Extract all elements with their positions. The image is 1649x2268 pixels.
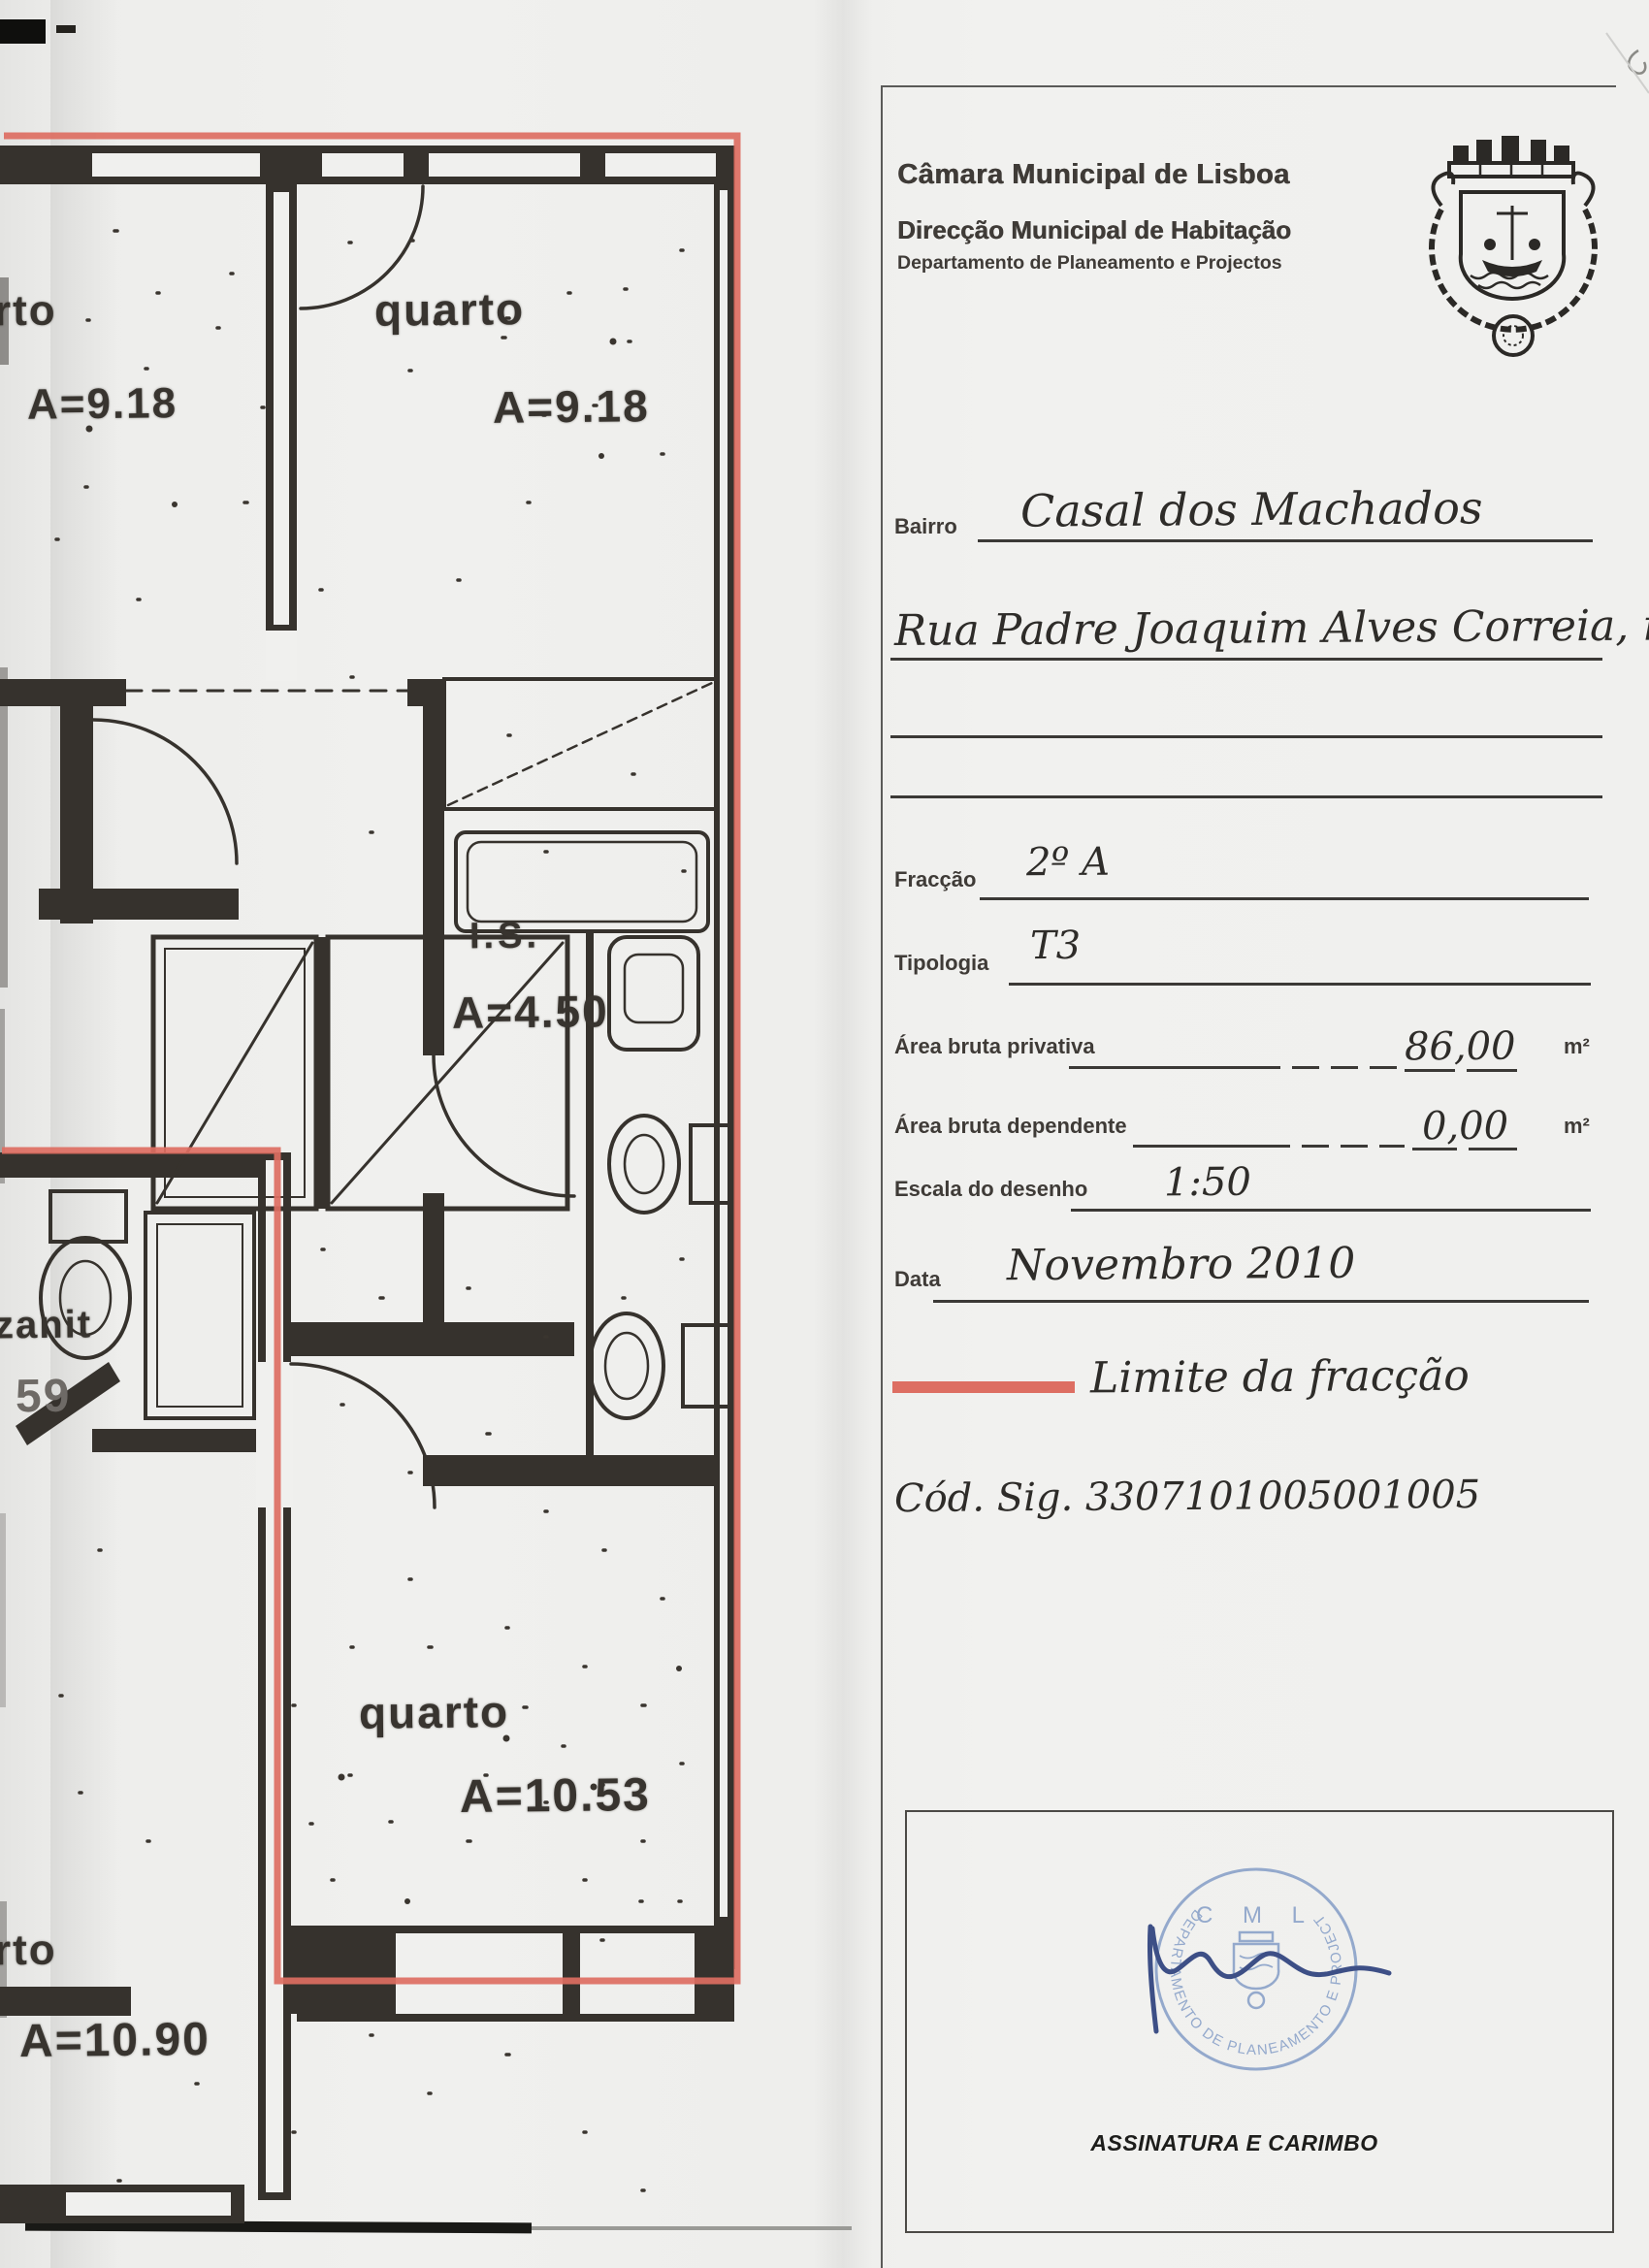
area-privativa-unit: m²: [1564, 1034, 1590, 1059]
dash: [1292, 1066, 1319, 1069]
hatched-area: [444, 679, 716, 809]
room-area-label: A=10.90: [19, 2013, 210, 2068]
dash: [1331, 1066, 1358, 1069]
dash: [1467, 1069, 1517, 1072]
area-dependente-unit: m²: [1564, 1114, 1590, 1139]
tipologia-value: T3: [1030, 923, 1081, 968]
cod-sig: Cód. Sig. 3307101005001005: [894, 1473, 1480, 1521]
room-label: rto: [0, 1927, 57, 1976]
data-value: Novembro 2010: [1007, 1239, 1356, 1291]
bidet-icon: [590, 1313, 663, 1418]
door-arc: [434, 1055, 574, 1196]
scanned-document-page: DEPARTAMENTO DE PLANEAMENTO E PROJECTOS …: [0, 0, 1649, 2268]
area-privativa-label: Área bruta privativa: [894, 1034, 1095, 1059]
area-dependente-label: Área bruta dependente: [894, 1114, 1127, 1139]
dash: [1302, 1145, 1329, 1148]
bairro-underline: [978, 539, 1593, 542]
room-label: zanit: [0, 1303, 92, 1347]
door-arc: [93, 720, 237, 863]
cabinet-icon: [145, 1213, 254, 1418]
room-area-label: 59: [16, 1370, 72, 1424]
area-dependente-value: 0,00: [1422, 1104, 1508, 1150]
dash: [1469, 1148, 1517, 1150]
info-panel-border-left: [881, 85, 883, 2268]
info-panel-border-top: [881, 85, 1616, 87]
dept-title: Direcção Municipal de Habitação: [897, 215, 1291, 245]
room-label: quarto: [359, 1685, 510, 1739]
legend-label: Limite da fracção: [1090, 1351, 1470, 1404]
area-privativa-value: 86,00: [1405, 1024, 1516, 1070]
room-area-label: A=9.18: [27, 379, 178, 430]
toilet-icon: [609, 1116, 679, 1213]
area-dependente-line: [1133, 1145, 1290, 1148]
org-title: Câmara Municipal de Lisboa: [897, 159, 1290, 191]
fraccao-underline: [980, 897, 1589, 900]
dash: [1341, 1145, 1368, 1148]
blank-line: [890, 795, 1602, 798]
svg-text:DEPARTAMENTO DE PLANEAMENTO E: DEPARTAMENTO DE PLANEAMENTO E PROJECTOS: [0, 0, 1345, 2058]
room-label: I.S.: [469, 916, 540, 958]
dash: [1405, 1069, 1455, 1072]
cml-round-stamp-icon: DEPARTAMENTO DE PLANEAMENTO E PROJECTOS …: [0, 0, 1356, 2069]
signature-caption: ASSINATURA E CARIMBO: [882, 2130, 1587, 2156]
room-label: quarto: [374, 282, 526, 337]
area-privativa-line: [1069, 1066, 1280, 1069]
fraccao-value: 2º A: [1026, 840, 1110, 886]
room-area-label: A=10.53: [460, 1768, 651, 1824]
room-area-label: A=9.18: [493, 379, 650, 434]
walls: [0, 146, 735, 2223]
blank-line: [890, 735, 1602, 738]
toilet-icon: [50, 1191, 126, 1242]
bairro-label: Bairro: [894, 514, 957, 539]
fraccao-label: Fracção: [894, 867, 976, 892]
subdept-title: Departamento de Planeamento e Projectos: [897, 252, 1282, 275]
legend-red-line: [892, 1381, 1075, 1393]
data-underline: [933, 1300, 1589, 1303]
room-area-label: A=4.50: [452, 985, 609, 1039]
dash: [1379, 1145, 1405, 1148]
signature-box: ASSINATURA E CARIMBO: [905, 1810, 1614, 2233]
tipologia-label: Tipologia: [894, 951, 988, 976]
lisbon-coat-of-arms-icon: [1432, 136, 1595, 355]
escala-underline: [1071, 1209, 1591, 1212]
tipologia-underline: [1009, 983, 1591, 986]
escala-label: Escala do desenho: [894, 1177, 1087, 1202]
address-value: Rua Padre Joaquim Alves Correia, nº 6: [894, 600, 1649, 656]
room-label: rto: [0, 287, 57, 337]
dash: [1412, 1148, 1457, 1150]
dash: [1370, 1066, 1397, 1069]
data-label: Data: [894, 1267, 941, 1292]
bairro-value: Casal dos Machados: [1020, 481, 1483, 536]
escala-value: 1:50: [1164, 1160, 1251, 1206]
address-underline: [890, 658, 1602, 661]
page-curl-mark: [1629, 50, 1645, 74]
stamp-ring-text: DEPARTAMENTO DE PLANEAMENTO E PROJECTOS: [0, 0, 1345, 2058]
door-arc: [291, 1364, 435, 1507]
